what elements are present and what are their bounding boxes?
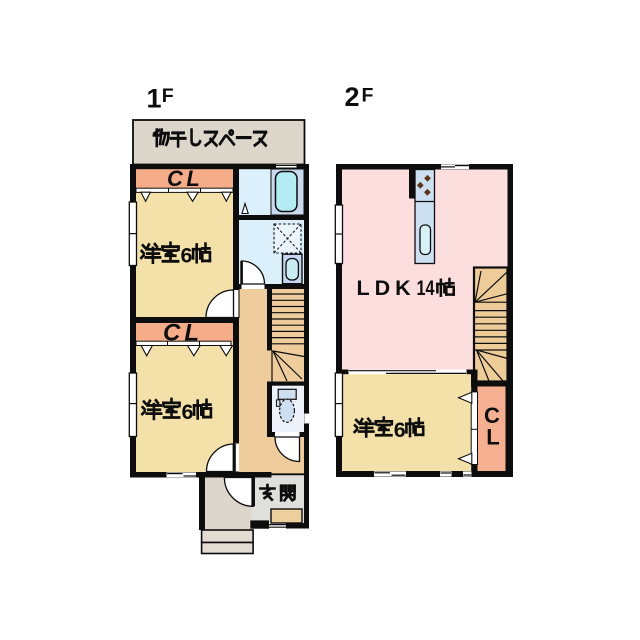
svg-text:CL: CL xyxy=(167,166,203,191)
svg-text:F: F xyxy=(162,85,174,107)
svg-text:6: 6 xyxy=(181,244,193,268)
svg-text:1: 1 xyxy=(147,84,162,114)
svg-text:6: 6 xyxy=(182,400,194,424)
svg-text:CL: CL xyxy=(163,320,203,347)
svg-text:2: 2 xyxy=(345,82,360,112)
svg-text:F: F xyxy=(362,85,374,107)
svg-text:LDK: LDK xyxy=(357,276,416,300)
svg-text:L: L xyxy=(486,425,499,450)
svg-text:14: 14 xyxy=(417,276,435,300)
svg-text:6: 6 xyxy=(394,418,406,442)
